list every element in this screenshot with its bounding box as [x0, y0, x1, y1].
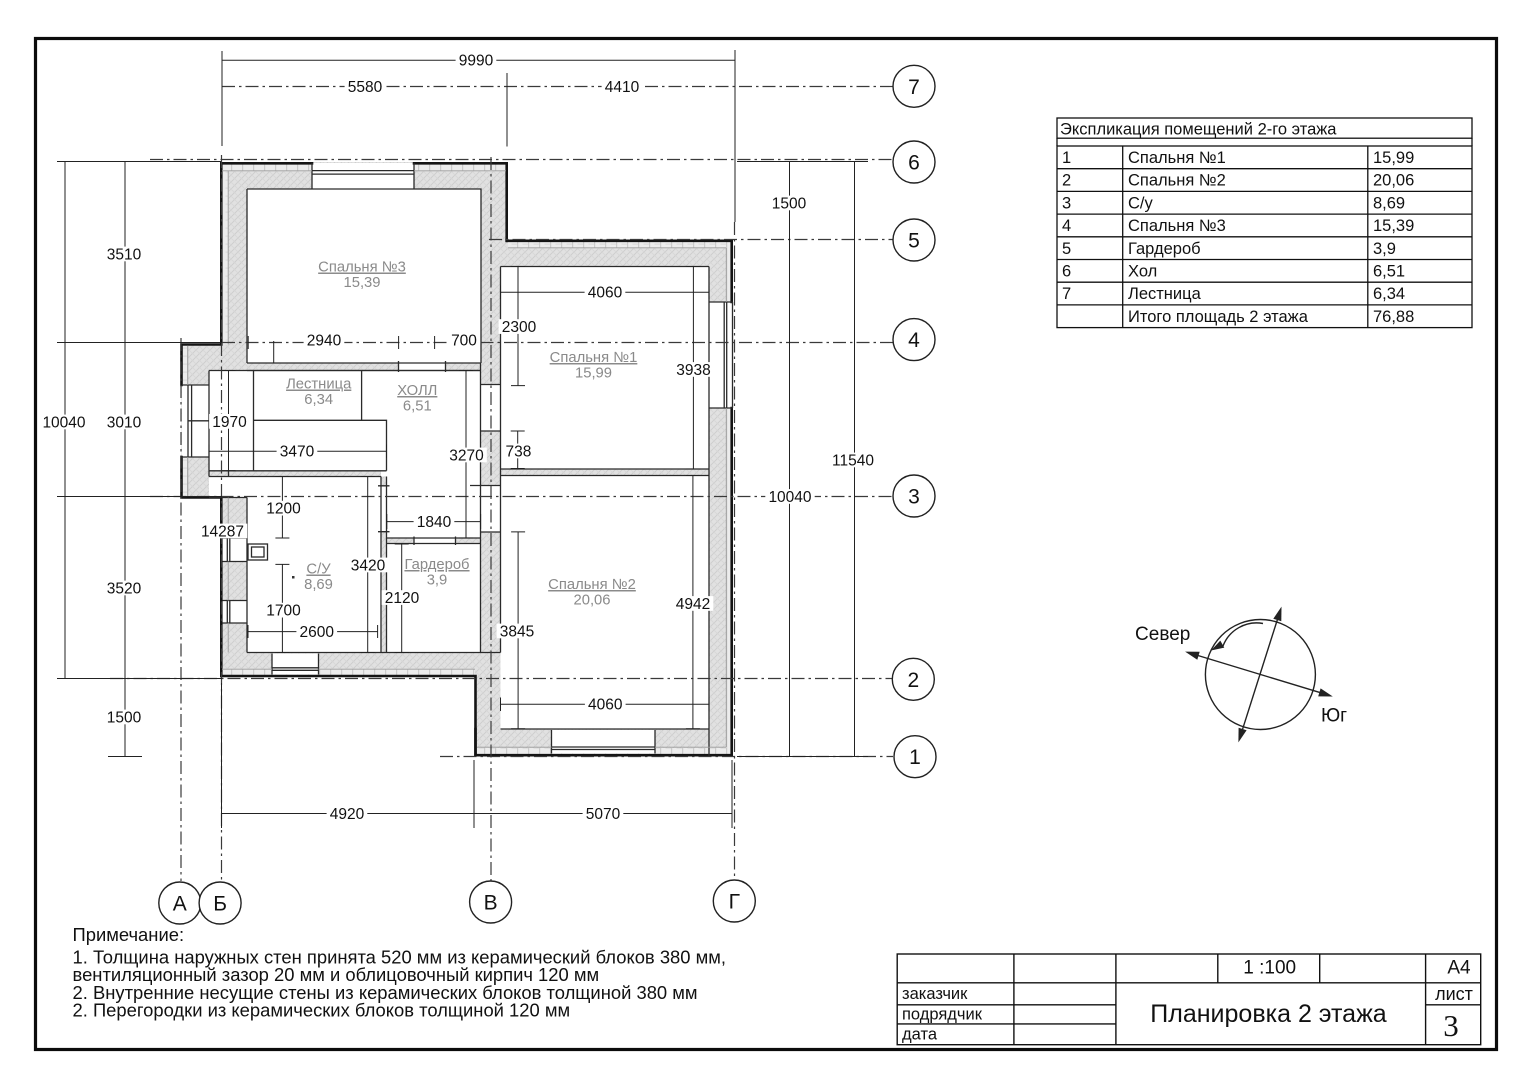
svg-text:2: 2	[1062, 172, 1071, 190]
svg-text:1 :100: 1 :100	[1243, 958, 1296, 979]
svg-text:Хол: Хол	[1128, 263, 1157, 281]
svg-text:20,06: 20,06	[1373, 172, 1414, 190]
svg-text:6,51: 6,51	[1373, 263, 1405, 281]
svg-text:1: 1	[1062, 149, 1071, 167]
svg-text:Спальня №1: Спальня №1	[1128, 149, 1226, 167]
svg-text:3510: 3510	[107, 246, 142, 263]
svg-text:3470: 3470	[280, 444, 315, 461]
svg-text:ХОЛЛ: ХОЛЛ	[397, 383, 437, 399]
svg-text:5: 5	[908, 230, 920, 253]
svg-text:15,39: 15,39	[1373, 217, 1414, 235]
svg-text:3270: 3270	[449, 447, 484, 464]
svg-text:7: 7	[1062, 285, 1071, 303]
svg-text:9990: 9990	[459, 53, 494, 70]
svg-text:заказчик: заказчик	[902, 985, 968, 1003]
svg-text:6,51: 6,51	[403, 398, 432, 414]
svg-text:2120: 2120	[385, 590, 420, 607]
svg-text:6,34: 6,34	[1373, 285, 1405, 303]
svg-text:4060: 4060	[588, 697, 623, 714]
svg-text:700: 700	[451, 332, 477, 349]
svg-text:Спальня №1: Спальня №1	[550, 350, 638, 366]
svg-text:10040: 10040	[768, 489, 811, 506]
svg-text:Лестница: Лестница	[1128, 285, 1202, 303]
svg-text:5070: 5070	[586, 806, 621, 823]
svg-text:6: 6	[1062, 263, 1071, 281]
svg-text:Спальня №2: Спальня №2	[1128, 172, 1226, 190]
svg-text:Г: Г	[729, 891, 740, 914]
svg-text:2: 2	[907, 669, 919, 692]
svg-text:3,9: 3,9	[1373, 240, 1396, 258]
svg-text:8,69: 8,69	[1373, 194, 1405, 212]
svg-text:15,99: 15,99	[575, 365, 612, 381]
svg-text:Б: Б	[213, 893, 227, 916]
svg-text:1: 1	[909, 746, 921, 769]
svg-text:Спальня №2: Спальня №2	[548, 577, 636, 593]
svg-text:3: 3	[908, 486, 920, 509]
svg-text:1700: 1700	[266, 603, 301, 620]
svg-text:10040: 10040	[42, 414, 85, 431]
svg-text:1500: 1500	[107, 709, 142, 726]
svg-text:Итого площадь 2 этажа: Итого площадь 2 этажа	[1128, 308, 1309, 326]
svg-text:Спальня №3: Спальня №3	[318, 260, 406, 276]
svg-text:1970: 1970	[212, 414, 247, 431]
svg-text:дата: дата	[902, 1026, 938, 1044]
svg-text:3010: 3010	[107, 414, 142, 431]
svg-text:76,88: 76,88	[1373, 308, 1414, 326]
svg-text:5580: 5580	[348, 79, 383, 96]
svg-text:5: 5	[1062, 240, 1071, 258]
svg-text:А4: А4	[1447, 958, 1471, 979]
svg-text:3845: 3845	[500, 623, 534, 640]
svg-text:11540: 11540	[832, 452, 874, 469]
svg-text:1840: 1840	[417, 514, 452, 531]
svg-text:3,9: 3,9	[427, 572, 448, 588]
svg-text:4920: 4920	[330, 806, 365, 823]
svg-text:2300: 2300	[502, 319, 537, 336]
svg-text:Гардероб: Гардероб	[404, 557, 469, 573]
svg-text:С/у: С/у	[1128, 194, 1154, 212]
svg-text:20,06: 20,06	[573, 592, 610, 608]
svg-text:Планировка 2 этажа: Планировка 2 этажа	[1150, 1000, 1387, 1028]
svg-text:4060: 4060	[588, 285, 623, 302]
svg-text:4: 4	[908, 329, 920, 352]
svg-text:В: В	[484, 892, 498, 915]
svg-text:4942: 4942	[676, 596, 710, 613]
svg-text:8,69: 8,69	[304, 577, 333, 593]
svg-text:4: 4	[1062, 217, 1071, 235]
svg-text:Гардероб: Гардероб	[1128, 240, 1201, 258]
svg-text:А: А	[173, 893, 187, 916]
svg-text:6: 6	[908, 152, 920, 175]
svg-text:Экспликация помещений 2-го эта: Экспликация помещений 2-го этажа	[1060, 121, 1337, 139]
svg-text:лист: лист	[1435, 984, 1473, 1004]
svg-text:Спальня №3: Спальня №3	[1128, 217, 1226, 235]
svg-text:3420: 3420	[351, 557, 386, 574]
svg-text:15,39: 15,39	[343, 275, 380, 291]
svg-text:Примечание:: Примечание:	[73, 924, 185, 945]
svg-text:Север: Север	[1135, 624, 1190, 645]
svg-text:С/У: С/У	[306, 562, 331, 578]
svg-text:6,34: 6,34	[304, 392, 333, 408]
svg-text:4410: 4410	[605, 79, 640, 96]
svg-text:Лестница: Лестница	[286, 377, 352, 393]
svg-text:подрядчик: подрядчик	[902, 1006, 983, 1024]
svg-text:1200: 1200	[266, 501, 301, 518]
svg-text:738: 738	[505, 443, 531, 460]
svg-text:3520: 3520	[107, 580, 142, 597]
svg-text:Юг: Юг	[1321, 706, 1347, 727]
svg-text:7: 7	[908, 76, 920, 99]
svg-text:2. Перегородки из керамических: 2. Перегородки из керамических блоков то…	[73, 1000, 571, 1021]
svg-text:1500: 1500	[772, 195, 807, 212]
svg-text:3938: 3938	[676, 362, 710, 379]
svg-text:2940: 2940	[307, 332, 342, 349]
svg-text:15,99: 15,99	[1373, 149, 1414, 167]
svg-text:14287: 14287	[201, 523, 244, 540]
svg-text:2600: 2600	[300, 624, 335, 641]
svg-text:3: 3	[1062, 194, 1071, 212]
svg-text:3: 3	[1443, 1008, 1459, 1043]
